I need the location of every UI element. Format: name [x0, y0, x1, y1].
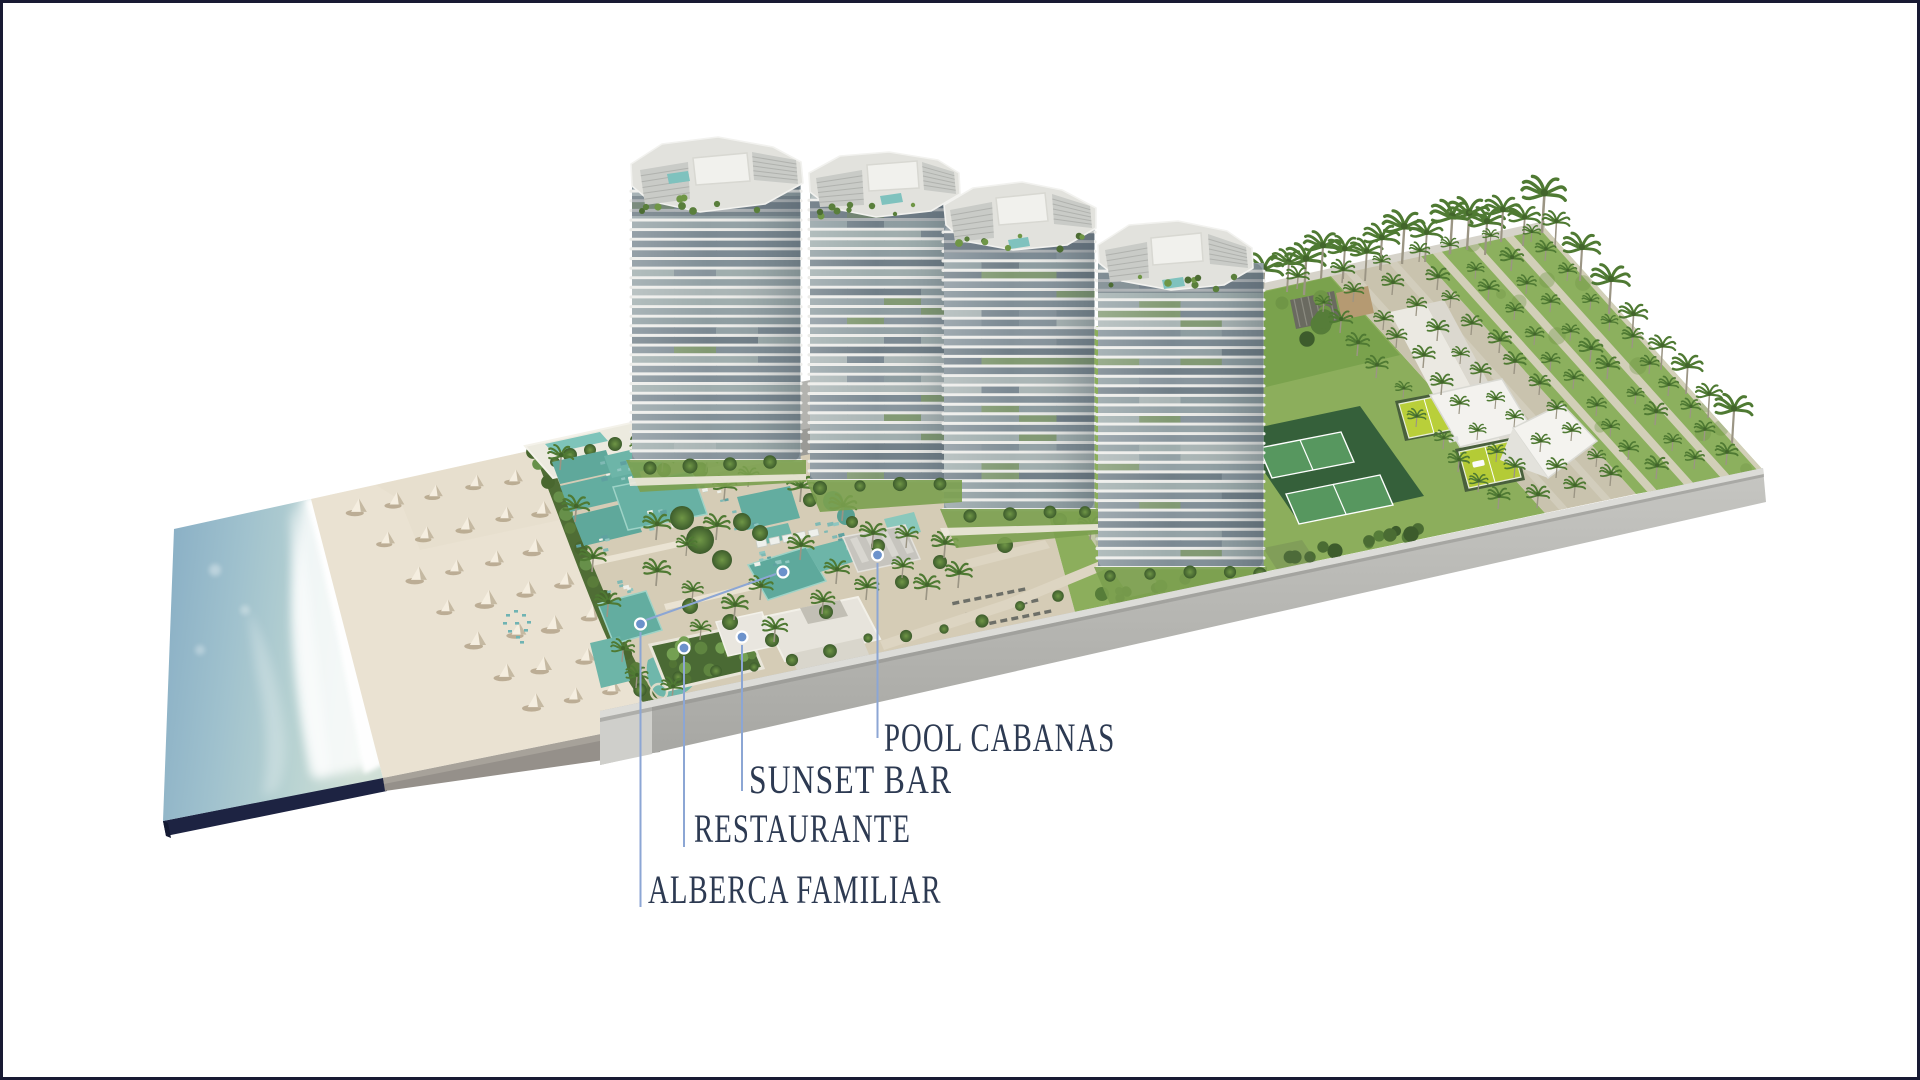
svg-text:SUNSET BAR: SUNSET BAR: [749, 757, 952, 802]
svg-text:RESTAURANTE: RESTAURANTE: [694, 806, 911, 851]
svg-text:ALBERCA FAMILIAR: ALBERCA FAMILIAR: [648, 867, 942, 912]
svg-text:POOL CABANAS: POOL CABANAS: [884, 715, 1115, 760]
